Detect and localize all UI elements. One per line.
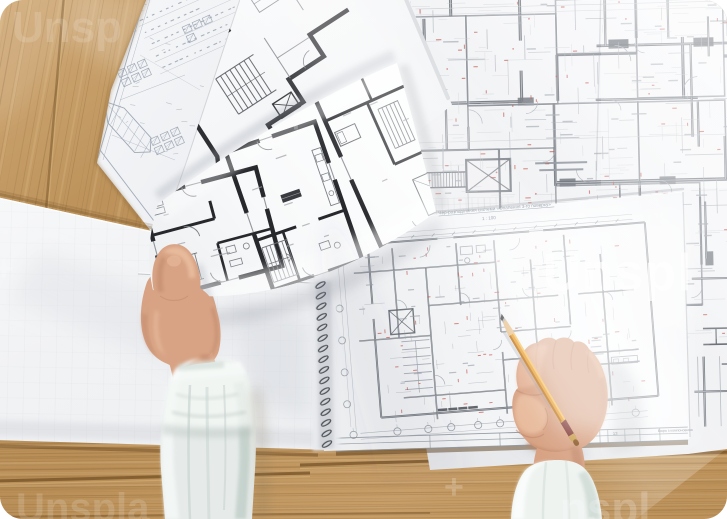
svg-text:+: + [0,250,14,288]
svg-text:Unsp: Unsp [12,3,122,52]
svg-text:+: + [286,102,306,140]
svg-text:Unspla: Unspla [16,486,150,519]
svg-text:nspl: nspl [560,484,650,519]
svg-text:Unspl: Unspl [543,244,692,302]
svg-text:+: + [444,468,464,506]
